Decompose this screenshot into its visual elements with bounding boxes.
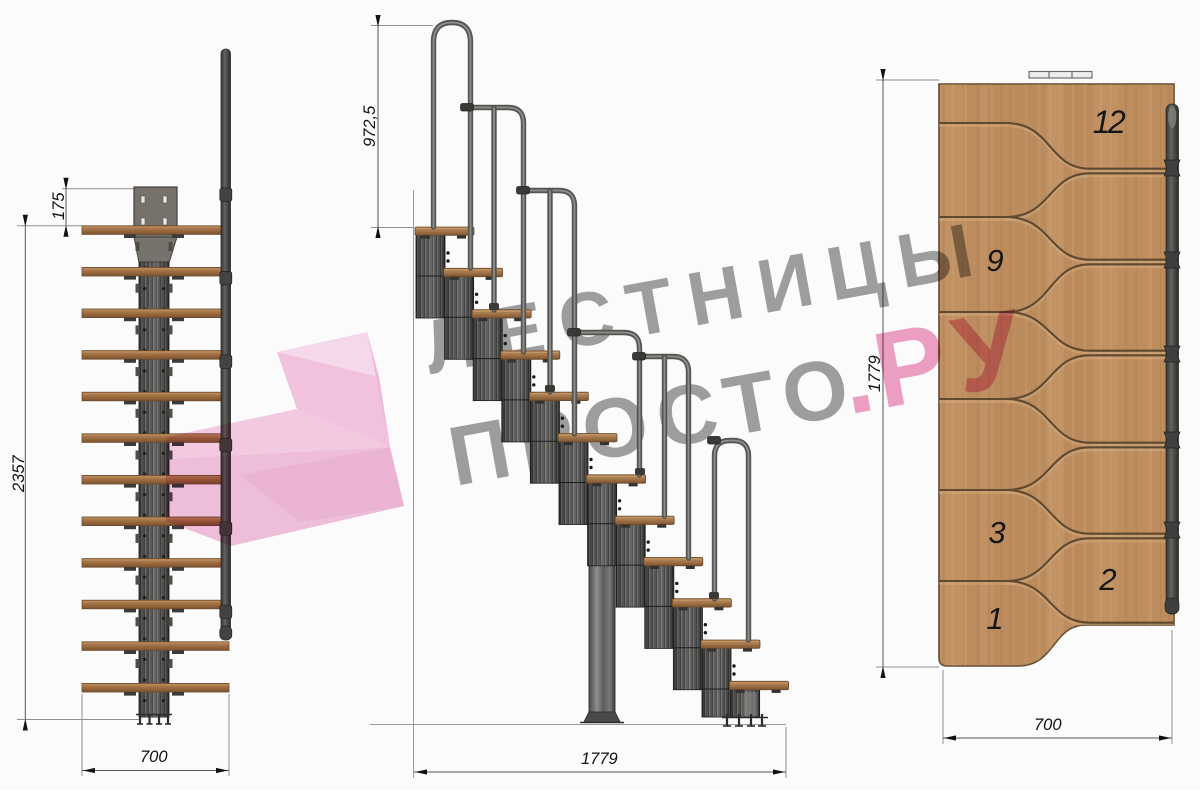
svg-text:972,5: 972,5 [361,105,379,147]
svg-text:700: 700 [1034,716,1062,734]
svg-text:3: 3 [988,515,1005,550]
svg-text:2: 2 [1098,562,1116,597]
svg-text:2357: 2357 [10,454,28,493]
svg-text:175: 175 [50,192,68,220]
svg-text:1779: 1779 [581,750,618,768]
svg-text:1: 1 [986,601,1003,636]
svg-text:12: 12 [1093,104,1126,140]
svg-text:700: 700 [140,748,168,766]
